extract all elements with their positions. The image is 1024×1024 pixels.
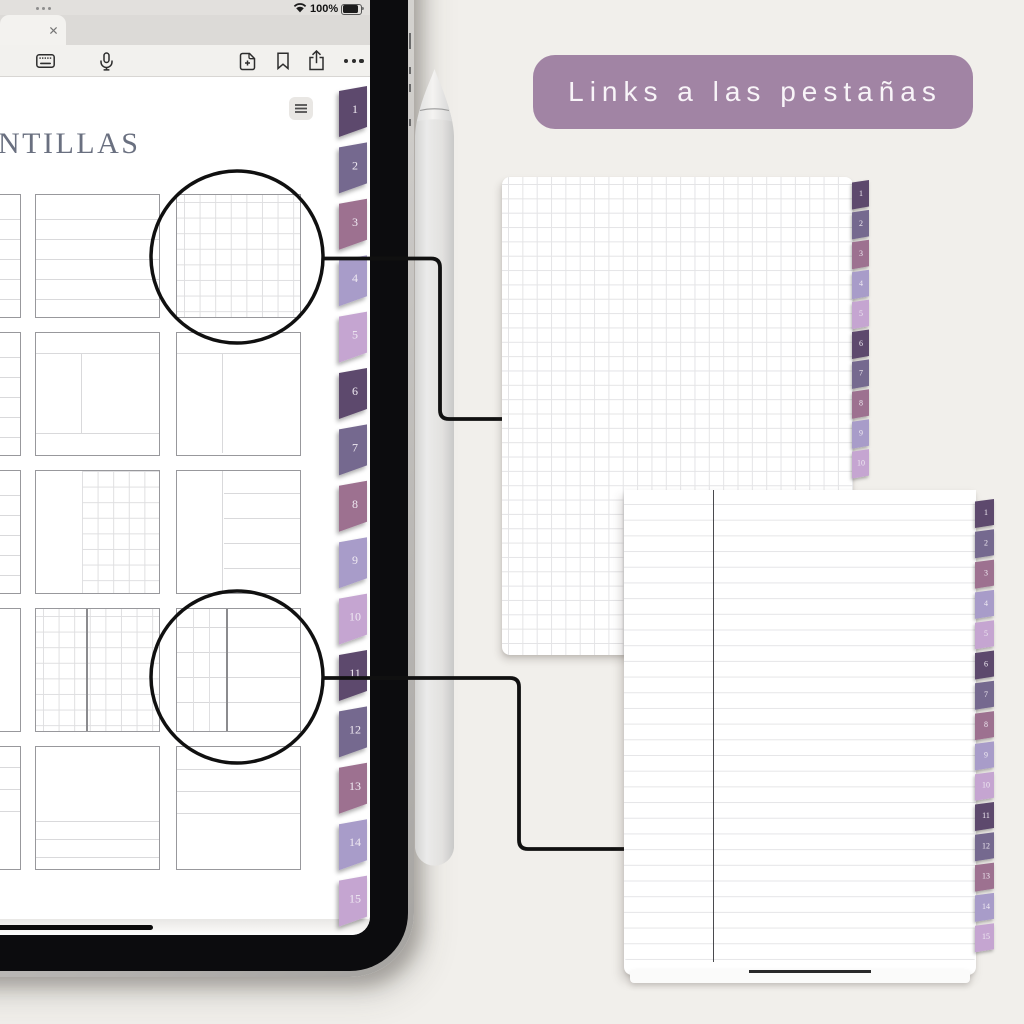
svg-text:3: 3	[859, 249, 863, 258]
svg-text:13: 13	[982, 872, 990, 881]
svg-text:3: 3	[984, 569, 988, 578]
svg-text:1: 1	[984, 508, 988, 517]
svg-text:10: 10	[857, 458, 865, 467]
svg-text:8: 8	[859, 399, 863, 408]
svg-text:11: 11	[982, 811, 990, 820]
svg-text:6: 6	[859, 339, 863, 348]
svg-text:7: 7	[984, 690, 988, 699]
svg-text:1: 1	[859, 189, 863, 198]
svg-text:2: 2	[859, 219, 863, 228]
svg-text:2: 2	[984, 538, 988, 547]
svg-text:5: 5	[984, 629, 988, 638]
svg-text:8: 8	[984, 720, 988, 729]
svg-text:10: 10	[982, 781, 990, 790]
svg-text:9: 9	[859, 428, 863, 437]
svg-text:14: 14	[982, 902, 990, 911]
svg-text:5: 5	[859, 309, 863, 318]
svg-text:15: 15	[982, 932, 990, 941]
svg-text:9: 9	[984, 750, 988, 759]
svg-text:12: 12	[982, 841, 990, 850]
svg-text:4: 4	[984, 599, 988, 608]
svg-text:7: 7	[859, 369, 863, 378]
svg-text:4: 4	[859, 279, 863, 288]
svg-text:6: 6	[984, 660, 988, 669]
